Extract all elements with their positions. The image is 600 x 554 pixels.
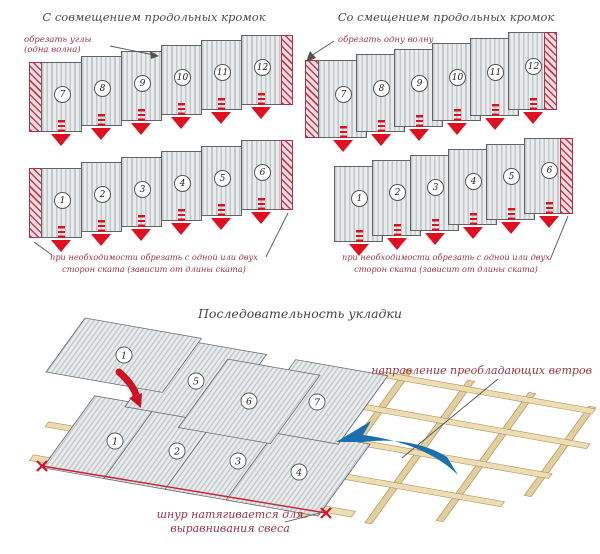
sheet-number: 5 bbox=[193, 377, 199, 388]
down-arrow-icon bbox=[91, 220, 111, 246]
down-arrow-icon bbox=[171, 209, 191, 235]
trim-caption: при необходимости обрезать с одной или д… bbox=[300, 252, 592, 262]
sheet-number: 2 bbox=[94, 186, 111, 203]
sheet-number: 7 bbox=[54, 86, 71, 103]
sheet-number: 2 bbox=[173, 447, 180, 458]
instruction-diagram: С совмещением продольных кромок обрезать… bbox=[0, 0, 600, 554]
sheet-number: 8 bbox=[94, 80, 111, 97]
sheet-number: 7 bbox=[335, 86, 352, 103]
sequence-title: Последовательность укладки bbox=[197, 306, 402, 321]
down-arrow-icon bbox=[211, 204, 231, 230]
sheet-number: 6 bbox=[254, 164, 271, 181]
sheet-number: 1 bbox=[112, 437, 118, 448]
down-arrow-icon bbox=[171, 103, 191, 129]
panel-title: С совмещением продольных кромок bbox=[8, 10, 300, 24]
sheet-number: 4 bbox=[295, 468, 302, 479]
down-arrow-icon bbox=[523, 98, 543, 124]
laying-sequence-diagram: Последовательность укладки bbox=[0, 300, 600, 554]
cut-corners-note: обрезать углы (одна волна) bbox=[24, 35, 91, 55]
panel-offset-edges: Со смещением продольных кромок обрезать … bbox=[300, 6, 592, 298]
sheet-number: 8 bbox=[373, 80, 390, 97]
sheet-number: 6 bbox=[541, 162, 558, 179]
sheet-number: 1 bbox=[54, 192, 71, 209]
sheet-number: 9 bbox=[411, 75, 428, 92]
cut-strip-right bbox=[281, 140, 293, 210]
down-arrow-icon bbox=[131, 215, 151, 241]
cut-strip-right bbox=[281, 35, 293, 105]
sheet-number: 12 bbox=[525, 58, 542, 75]
trim-caption: сторон ската (зависит от длины ската) bbox=[8, 264, 300, 274]
sheet-number: 5 bbox=[214, 170, 231, 187]
down-arrow-icon bbox=[51, 226, 71, 252]
down-arrow-icon bbox=[51, 120, 71, 146]
panel-aligned-edges: С совмещением продольных кромок обрезать… bbox=[8, 6, 300, 298]
sheet-number: 6 bbox=[246, 397, 252, 408]
down-arrow-icon bbox=[333, 126, 353, 152]
down-arrow-icon bbox=[251, 198, 271, 224]
sheet-number: 3 bbox=[427, 179, 444, 196]
cut-wave-note: обрезать одну волну bbox=[338, 35, 434, 45]
sheet-number: 9 bbox=[134, 75, 151, 92]
sheet-number: 12 bbox=[254, 59, 271, 76]
down-arrow-icon bbox=[485, 104, 505, 130]
down-arrow-icon bbox=[371, 120, 391, 146]
sheet-number: 7 bbox=[314, 398, 321, 409]
sheet-number: 3 bbox=[134, 181, 151, 198]
cut-strip-left bbox=[305, 60, 319, 138]
down-arrow-icon bbox=[409, 115, 429, 141]
down-arrow-icon bbox=[463, 213, 483, 239]
down-arrow-icon bbox=[501, 208, 521, 234]
sheet-number: 2 bbox=[389, 184, 406, 201]
sheet-number: 11 bbox=[214, 64, 231, 81]
sheet-number: 11 bbox=[487, 64, 504, 81]
cut-strip-right bbox=[560, 138, 573, 214]
trim-caption: при необходимости обрезать с одной или д… bbox=[8, 252, 300, 262]
down-arrow-icon bbox=[131, 109, 151, 135]
down-arrow-icon bbox=[387, 224, 407, 250]
down-arrow-icon bbox=[539, 202, 559, 228]
down-arrow-icon bbox=[211, 98, 231, 124]
down-arrow-icon bbox=[447, 109, 467, 135]
down-arrow-icon bbox=[425, 219, 445, 245]
cord-label: выравнивания свеса bbox=[170, 522, 290, 535]
sheet-number: 10 bbox=[449, 69, 466, 86]
trim-caption: сторон ската (зависит от длины ската) bbox=[300, 264, 592, 274]
sheet-number: 4 bbox=[465, 173, 482, 190]
down-arrow-icon bbox=[251, 93, 271, 119]
down-arrow-icon bbox=[91, 114, 111, 140]
sheet-number: 4 bbox=[174, 175, 191, 192]
cut-strip-right bbox=[544, 32, 557, 110]
sheet-number: 3 bbox=[235, 457, 241, 468]
sheet-number: 5 bbox=[503, 168, 520, 185]
sheet-number: 10 bbox=[174, 69, 191, 86]
sheet-number: 1 bbox=[121, 351, 127, 362]
wind-label: направление преобладающих ветров bbox=[371, 364, 592, 377]
cord-label: шнур натягивается для bbox=[157, 508, 304, 521]
panel-title: Со смещением продольных кромок bbox=[300, 10, 592, 24]
sheet-number: 1 bbox=[351, 190, 368, 207]
